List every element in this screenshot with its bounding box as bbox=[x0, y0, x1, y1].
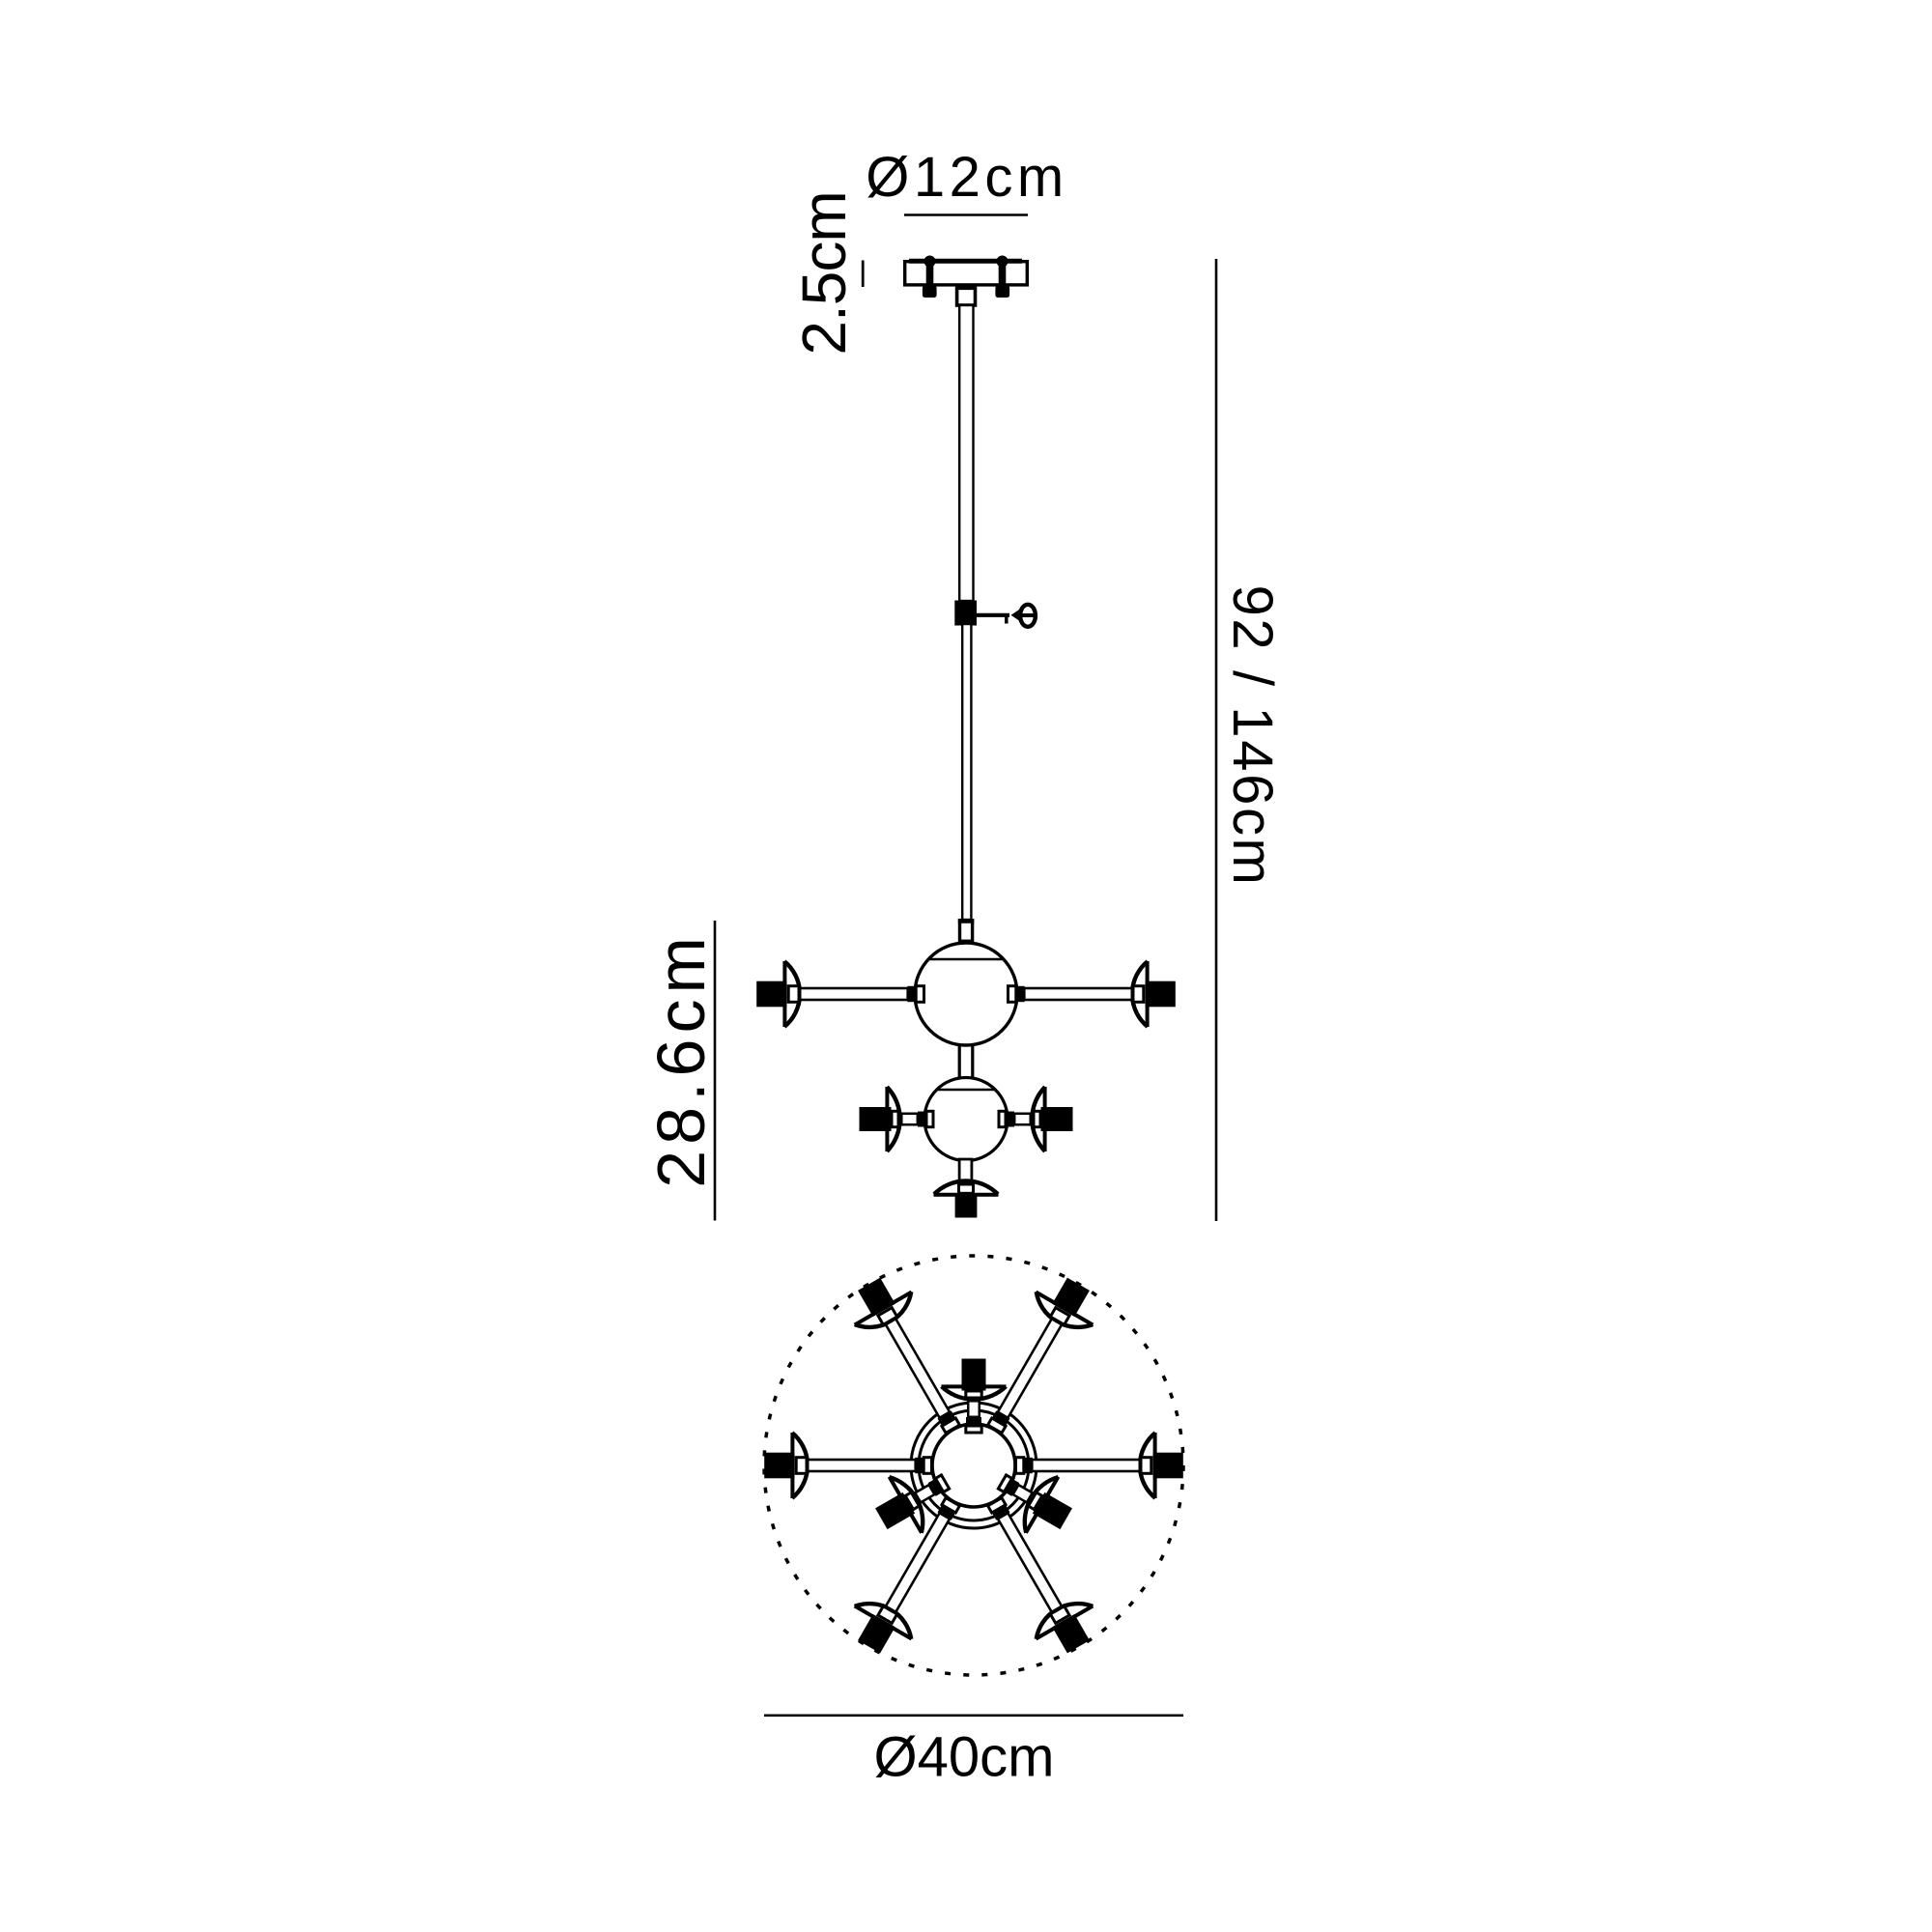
svg-text:28.6cm: 28.6cm bbox=[643, 931, 719, 1188]
svg-text:2.5cm: 2.5cm bbox=[789, 191, 859, 355]
svg-text:Ø40cm: Ø40cm bbox=[874, 1726, 1055, 1789]
svg-text:92 / 146cm: 92 / 146cm bbox=[1221, 585, 1284, 888]
svg-text:Ø12cm: Ø12cm bbox=[866, 146, 1067, 209]
